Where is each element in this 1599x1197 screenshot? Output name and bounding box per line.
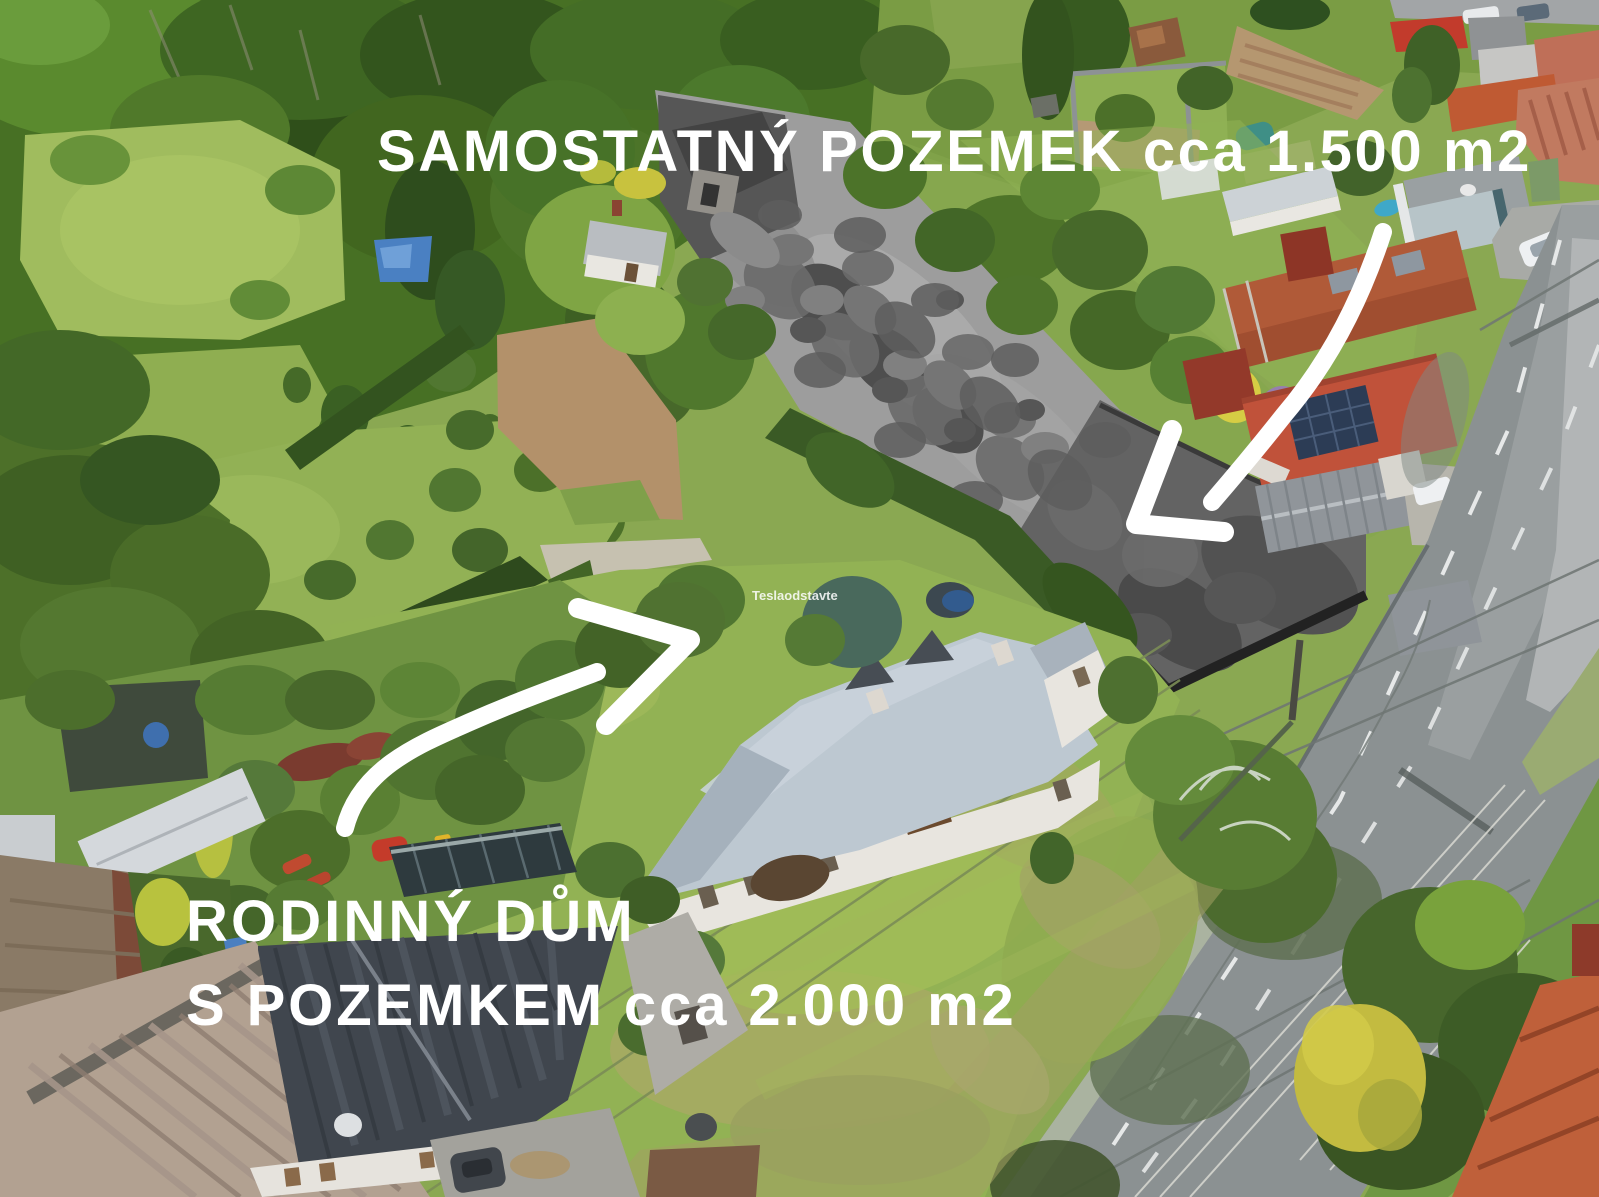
svg-text:Teslaodstavte: Teslaodstavte xyxy=(752,588,838,603)
